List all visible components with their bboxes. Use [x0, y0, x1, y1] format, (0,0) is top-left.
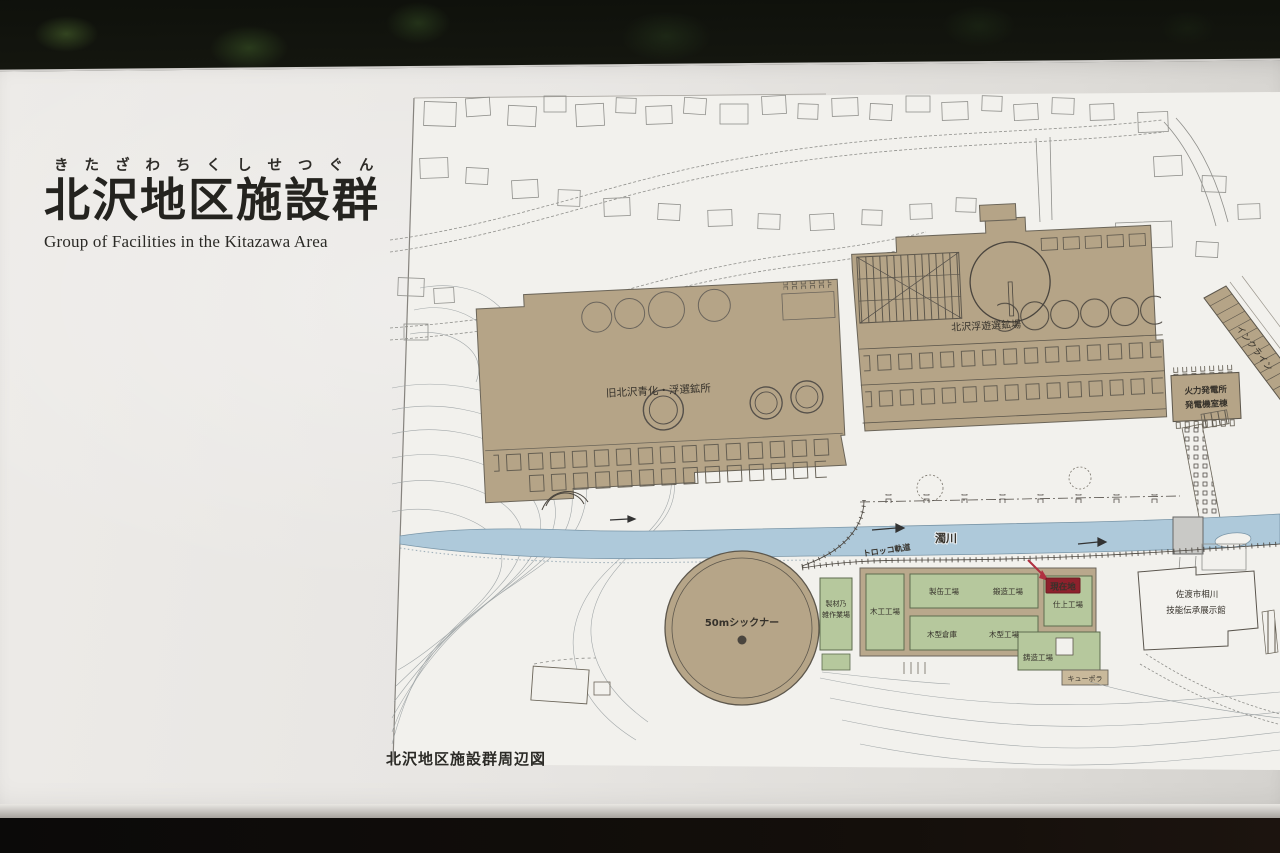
title-block: きたざわちくしせつぐん 北沢地区施設群 Group of Facilities … [44, 154, 384, 252]
label-pattern-warehouse: 木型倉庫 [927, 629, 957, 639]
label-sawmill-2: 雑作業場 [822, 610, 850, 619]
label-pattern-shop: 木型工場 [989, 629, 1019, 639]
label-power-plant-1: 火力発電所 [1184, 384, 1227, 397]
label-power-plant-2: 発電機室棟 [1184, 398, 1228, 411]
label-you-are-here: 現在地 [1050, 582, 1076, 593]
label-river: 濁川 [935, 531, 957, 545]
page-title: 北沢地区施設群 [44, 175, 384, 228]
signboard-photo: きたざわちくしせつぐん 北沢地区施設群 Group of Facilities … [0, 0, 1280, 853]
label-finishing: 仕上工場 [1053, 599, 1083, 609]
foliage-background [0, 0, 1280, 72]
label-forging: 鍛造工場 [993, 586, 1023, 596]
label-woodworking: 木工工場 [870, 606, 900, 616]
building-former-cyanide-mill: 旧北沢青化・浮選鉱所 [476, 279, 848, 502]
label-exhibition-1: 佐渡市相川 [1176, 589, 1219, 600]
label-cupola: キューポラ [1068, 675, 1103, 683]
thickener: 50mシックナー [665, 551, 819, 705]
bridge [1173, 517, 1203, 554]
label-thickener: 50mシックナー [705, 617, 779, 629]
label-sawmill-1: 製材乃 [826, 599, 847, 608]
sign-board: きたざわちくしせつぐん 北沢地区施設群 Group of Facilities … [0, 52, 1280, 818]
title-furigana: きたざわちくしせつぐん [44, 154, 384, 175]
label-canmaking: 製缶工場 [929, 586, 959, 596]
label-casting: 鋳造工場 [1023, 652, 1053, 662]
label-exhibition-2: 技能伝承展示館 [1166, 605, 1226, 616]
title-english: Group of Facilities in the Kitazawa Area [44, 232, 384, 252]
site-map: 旧北沢青化・浮選鉱所 [390, 92, 1280, 770]
map-caption: 北沢地区施設群周辺図 [386, 748, 546, 769]
photo-bottom-shadow [0, 818, 1280, 853]
